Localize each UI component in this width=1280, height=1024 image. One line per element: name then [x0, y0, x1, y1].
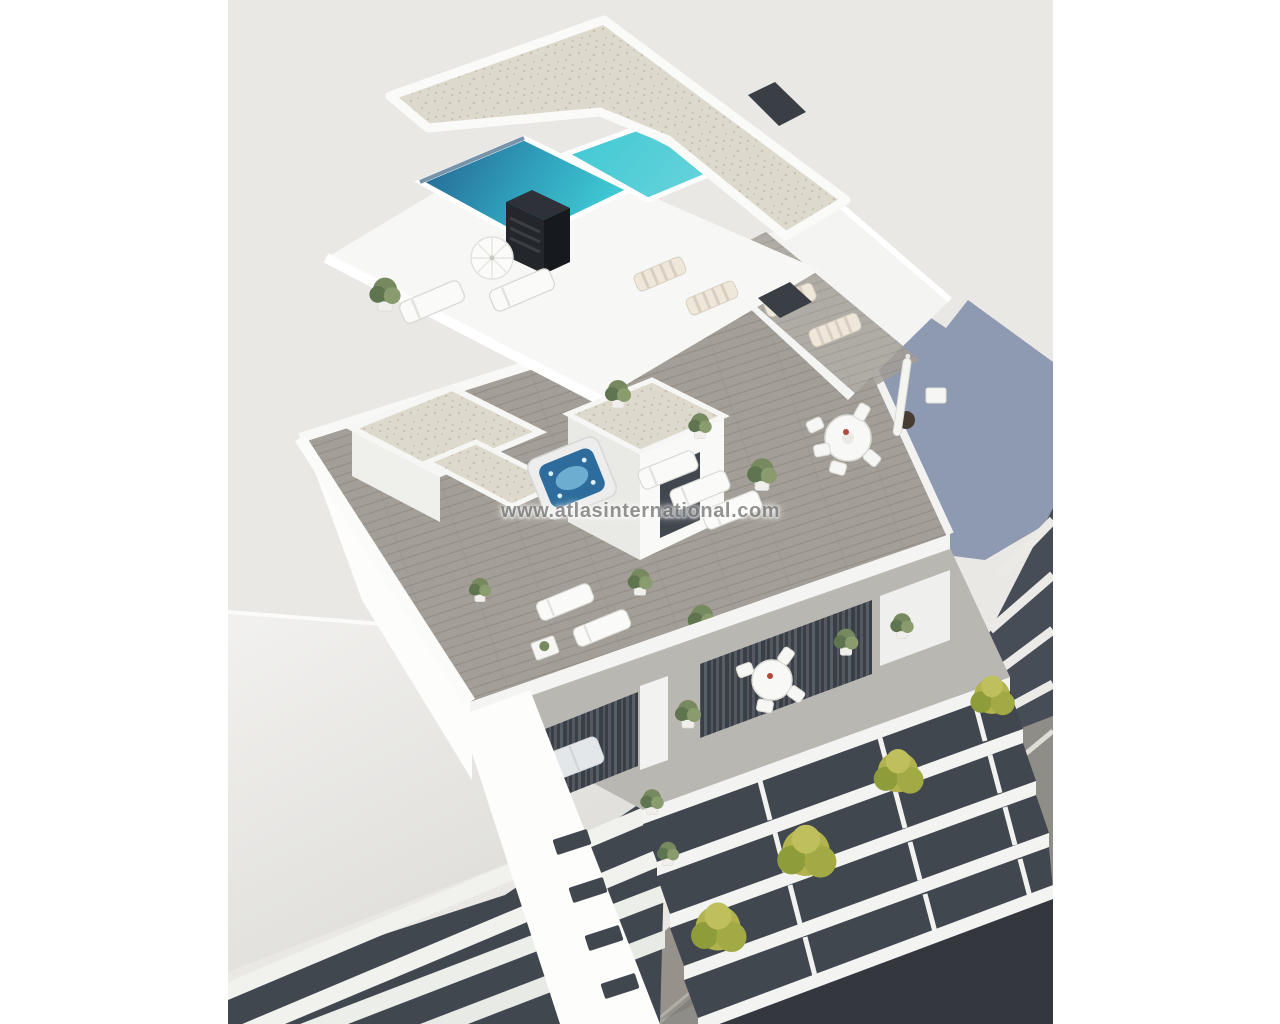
- building-render: [228, 0, 1053, 1024]
- pier: [640, 676, 668, 770]
- render-page: www.atlasinternational.com: [0, 0, 1280, 1024]
- render-canvas: www.atlasinternational.com: [228, 0, 1053, 1024]
- parasol-open: [471, 237, 513, 279]
- side-table: [926, 388, 946, 403]
- round-table: [752, 660, 792, 700]
